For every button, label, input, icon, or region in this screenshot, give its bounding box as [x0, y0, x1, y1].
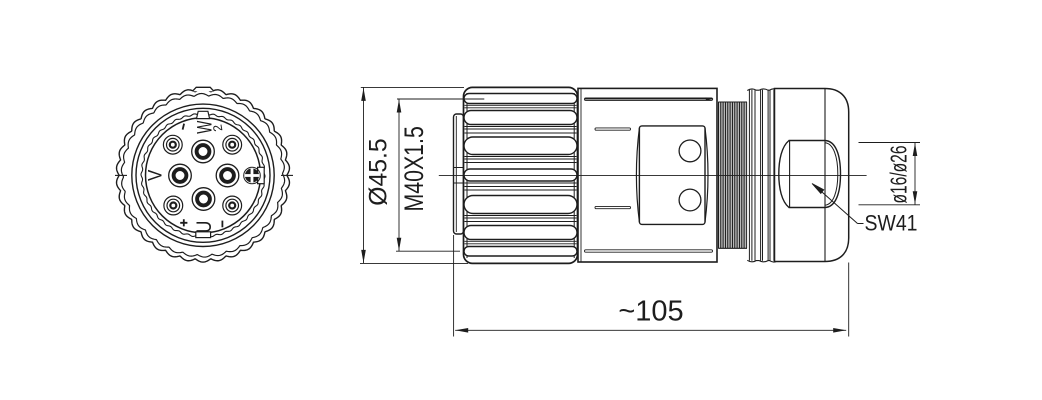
- svg-text:ø16/ø26: ø16/ø26: [886, 146, 912, 204]
- svg-text:M40X1.5: M40X1.5: [399, 126, 429, 211]
- svg-text:SW41: SW41: [865, 211, 918, 236]
- svg-text:~105: ~105: [618, 295, 683, 327]
- svg-text:U: U: [192, 221, 216, 234]
- svg-text:V: V: [145, 170, 167, 181]
- svg-text:Ø45.5: Ø45.5: [365, 138, 393, 205]
